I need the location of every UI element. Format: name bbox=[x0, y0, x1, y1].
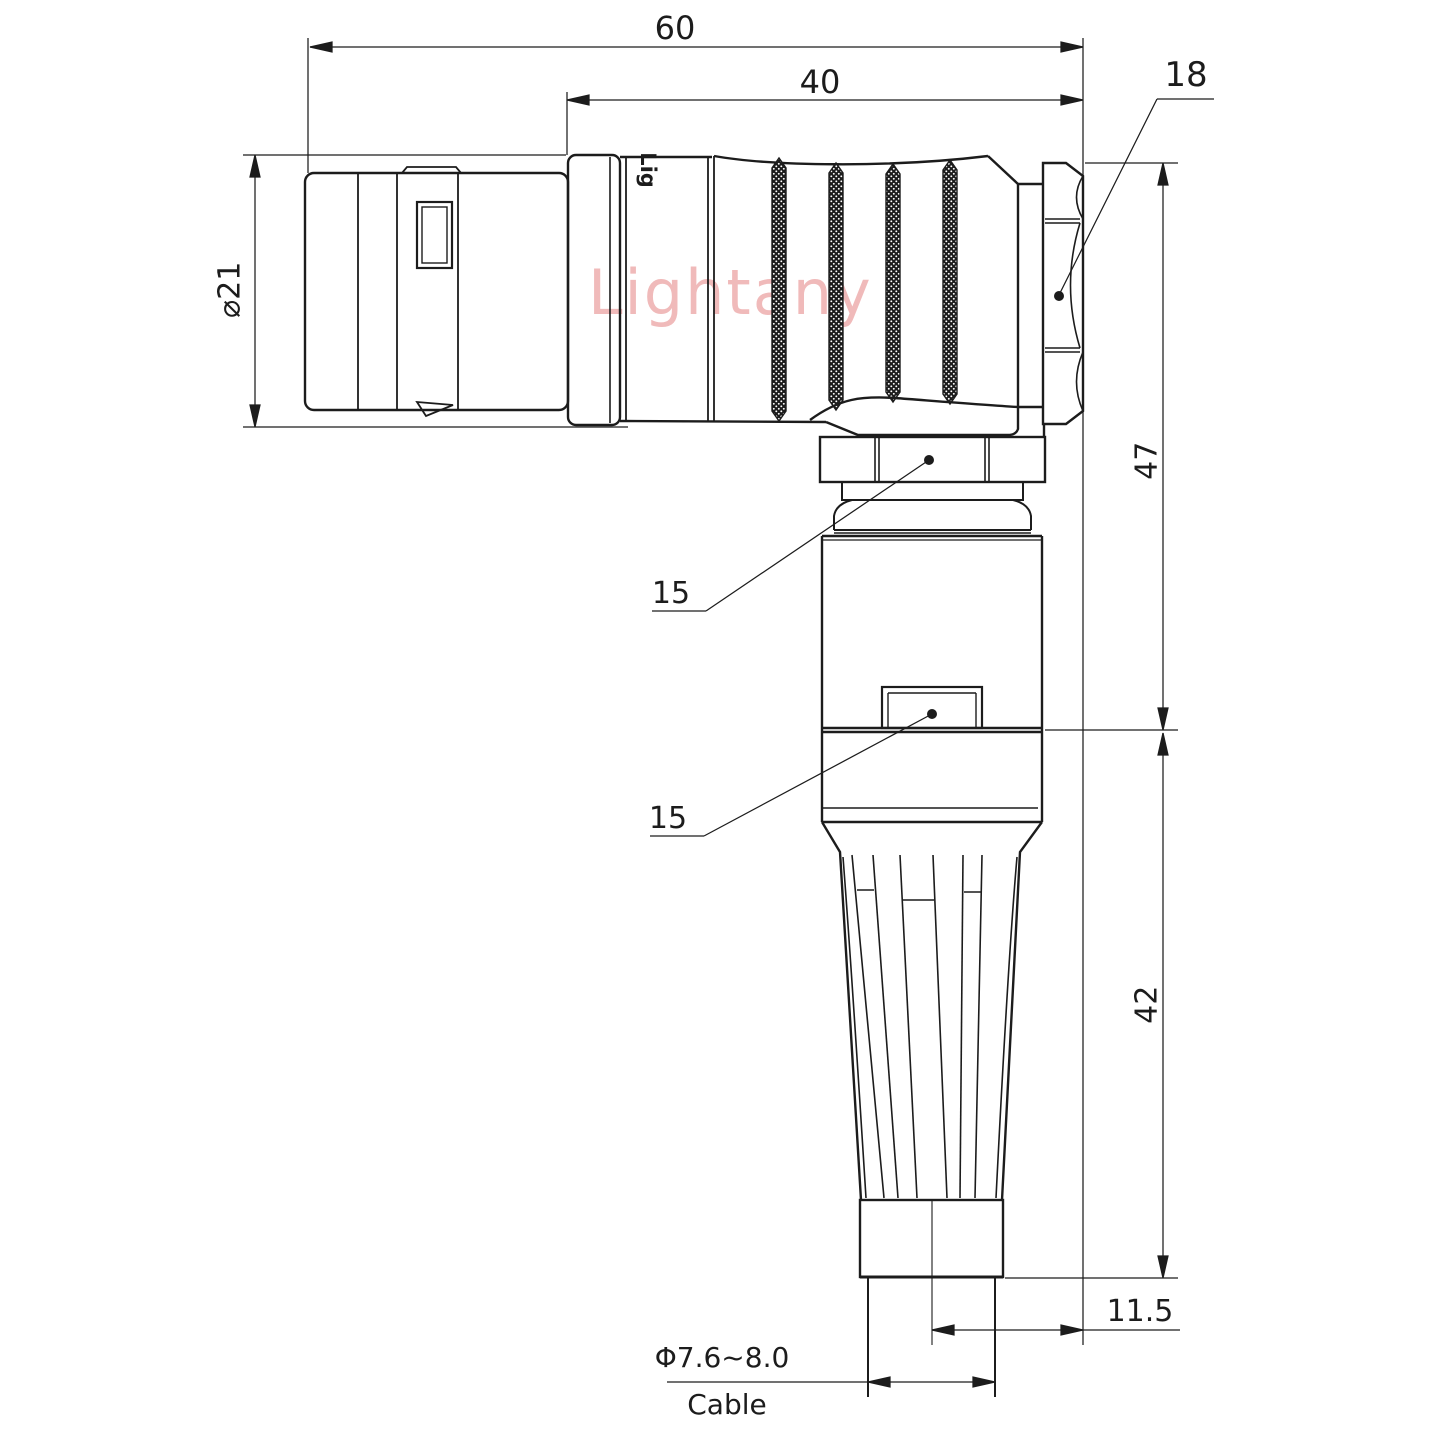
dim-18-label: 18 bbox=[1146, 58, 1226, 94]
front-shell bbox=[305, 167, 568, 416]
leader-18 bbox=[1054, 99, 1214, 301]
body-cylinder bbox=[822, 536, 1042, 822]
extension-lines bbox=[243, 38, 1178, 1345]
brand-logo-on-part: Lig bbox=[634, 156, 676, 198]
connector-body bbox=[305, 155, 1083, 1397]
washer-neck bbox=[834, 482, 1031, 533]
dim-d21-label: ⌀21 bbox=[214, 235, 246, 345]
release-sleeve bbox=[568, 155, 620, 425]
dimensions bbox=[243, 38, 1214, 1387]
dim-60-label: 60 bbox=[615, 12, 735, 46]
knurl-strips bbox=[772, 158, 957, 421]
dim-11p5-label: 11.5 bbox=[1080, 1296, 1200, 1328]
callout-15-lower-label: 15 bbox=[638, 803, 698, 835]
dim-40-label: 40 bbox=[760, 66, 880, 100]
dim-47-label: 47 bbox=[1131, 406, 1163, 516]
connector-drawing bbox=[0, 0, 1440, 1440]
dim-42-label: 42 bbox=[1131, 950, 1163, 1060]
cable-text-label: Cable bbox=[647, 1390, 807, 1419]
cable-diameter-label: Φ7.6~8.0 bbox=[642, 1343, 802, 1372]
callout-15-upper-label: 15 bbox=[641, 578, 701, 610]
elbow bbox=[810, 156, 1044, 437]
strain-relief bbox=[822, 822, 1042, 1200]
technical-drawing-page: Lightany bbox=[0, 0, 1440, 1440]
dim-d21-lines bbox=[250, 155, 260, 427]
dim-cable-lines bbox=[667, 1377, 995, 1387]
